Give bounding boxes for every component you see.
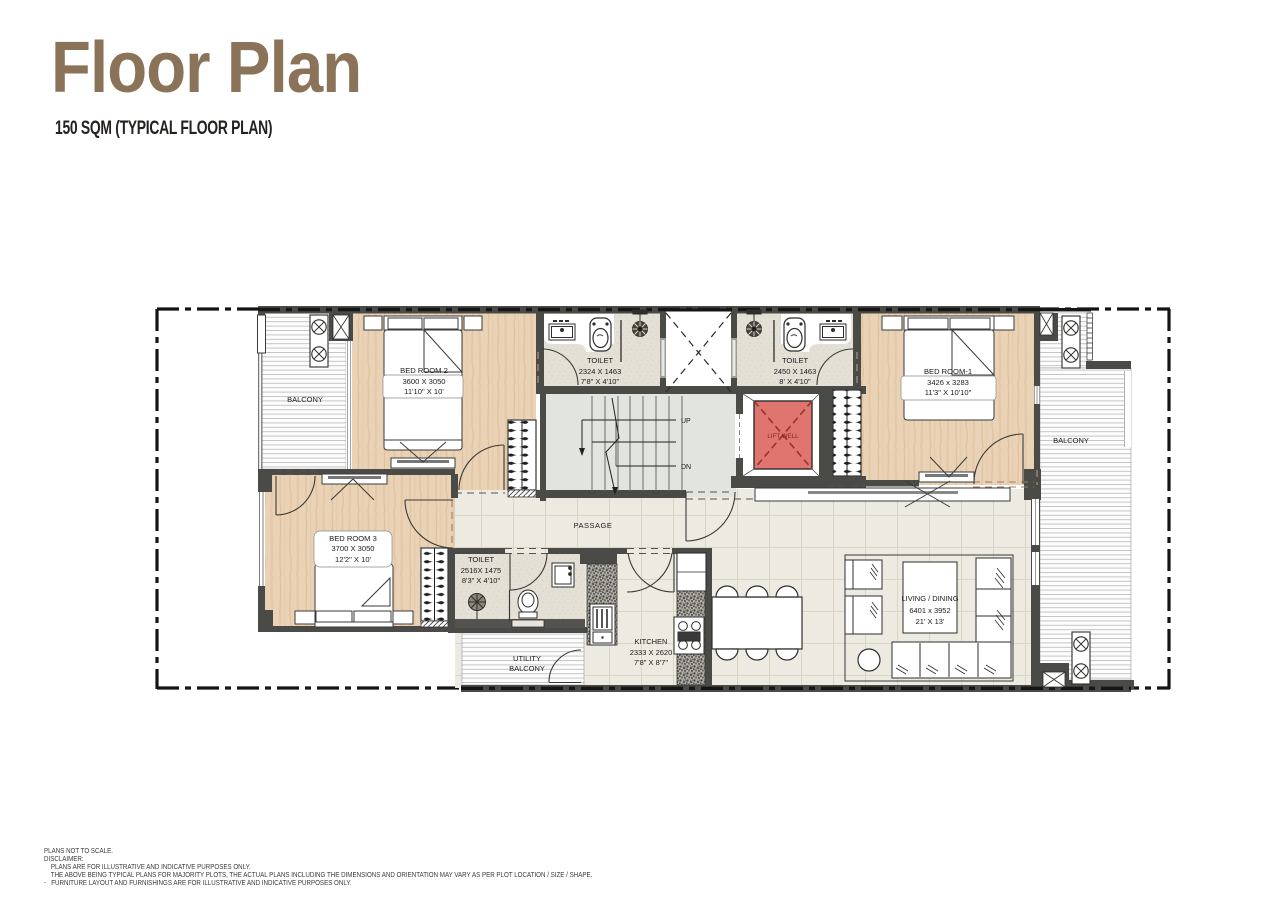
svg-text:TOILET: TOILET: [468, 555, 495, 564]
svg-text:BED ROOM 3: BED ROOM 3: [329, 534, 377, 543]
svg-text:6401 x 3952: 6401 x 3952: [909, 606, 950, 615]
svg-text:12'2" X 10': 12'2" X 10': [335, 555, 372, 564]
svg-text:2516X 1475: 2516X 1475: [461, 566, 501, 575]
svg-text:21' X 13': 21' X 13': [916, 617, 945, 626]
svg-text:LIVING / DINING: LIVING / DINING: [901, 594, 958, 603]
svg-text:8' X 4'10": 8' X 4'10": [779, 377, 811, 386]
svg-text:7'8" X 4'10": 7'8" X 4'10": [581, 377, 620, 386]
svg-text:KITCHEN: KITCHEN: [635, 637, 668, 646]
svg-text:UP: UP: [681, 418, 691, 425]
svg-text:DN: DN: [681, 464, 691, 471]
svg-text:BED ROOM 2: BED ROOM 2: [400, 366, 448, 375]
svg-text:LIFT WELL: LIFT WELL: [767, 433, 799, 440]
svg-text:BALCONY: BALCONY: [287, 395, 323, 404]
svg-text:3600 X 3050: 3600 X 3050: [402, 377, 445, 386]
svg-text:BALCONY: BALCONY: [509, 664, 545, 673]
svg-text:BALCONY: BALCONY: [1053, 436, 1089, 445]
svg-text:3426 x 3283: 3426 x 3283: [927, 378, 969, 387]
svg-text:11'10" X 10': 11'10" X 10': [404, 387, 444, 396]
svg-text:11'3" X 10'10": 11'3" X 10'10": [925, 388, 972, 397]
svg-text:2333 X 2620: 2333 X 2620: [630, 648, 673, 657]
svg-text:BED ROOM-1: BED ROOM-1: [924, 367, 972, 376]
svg-text:TOILET: TOILET: [587, 356, 614, 365]
svg-text:2450 X 1463: 2450 X 1463: [774, 367, 817, 376]
svg-text:UTILITY: UTILITY: [513, 654, 541, 663]
svg-text:7'8" X 8'7": 7'8" X 8'7": [634, 658, 668, 667]
svg-text:TOILET: TOILET: [782, 356, 809, 365]
svg-text:PASSAGE: PASSAGE: [574, 521, 613, 530]
svg-text:8'3" X 4'10": 8'3" X 4'10": [462, 576, 501, 585]
svg-text:2324 X 1463: 2324 X 1463: [579, 367, 622, 376]
svg-text:3700 X 3050: 3700 X 3050: [331, 544, 374, 553]
